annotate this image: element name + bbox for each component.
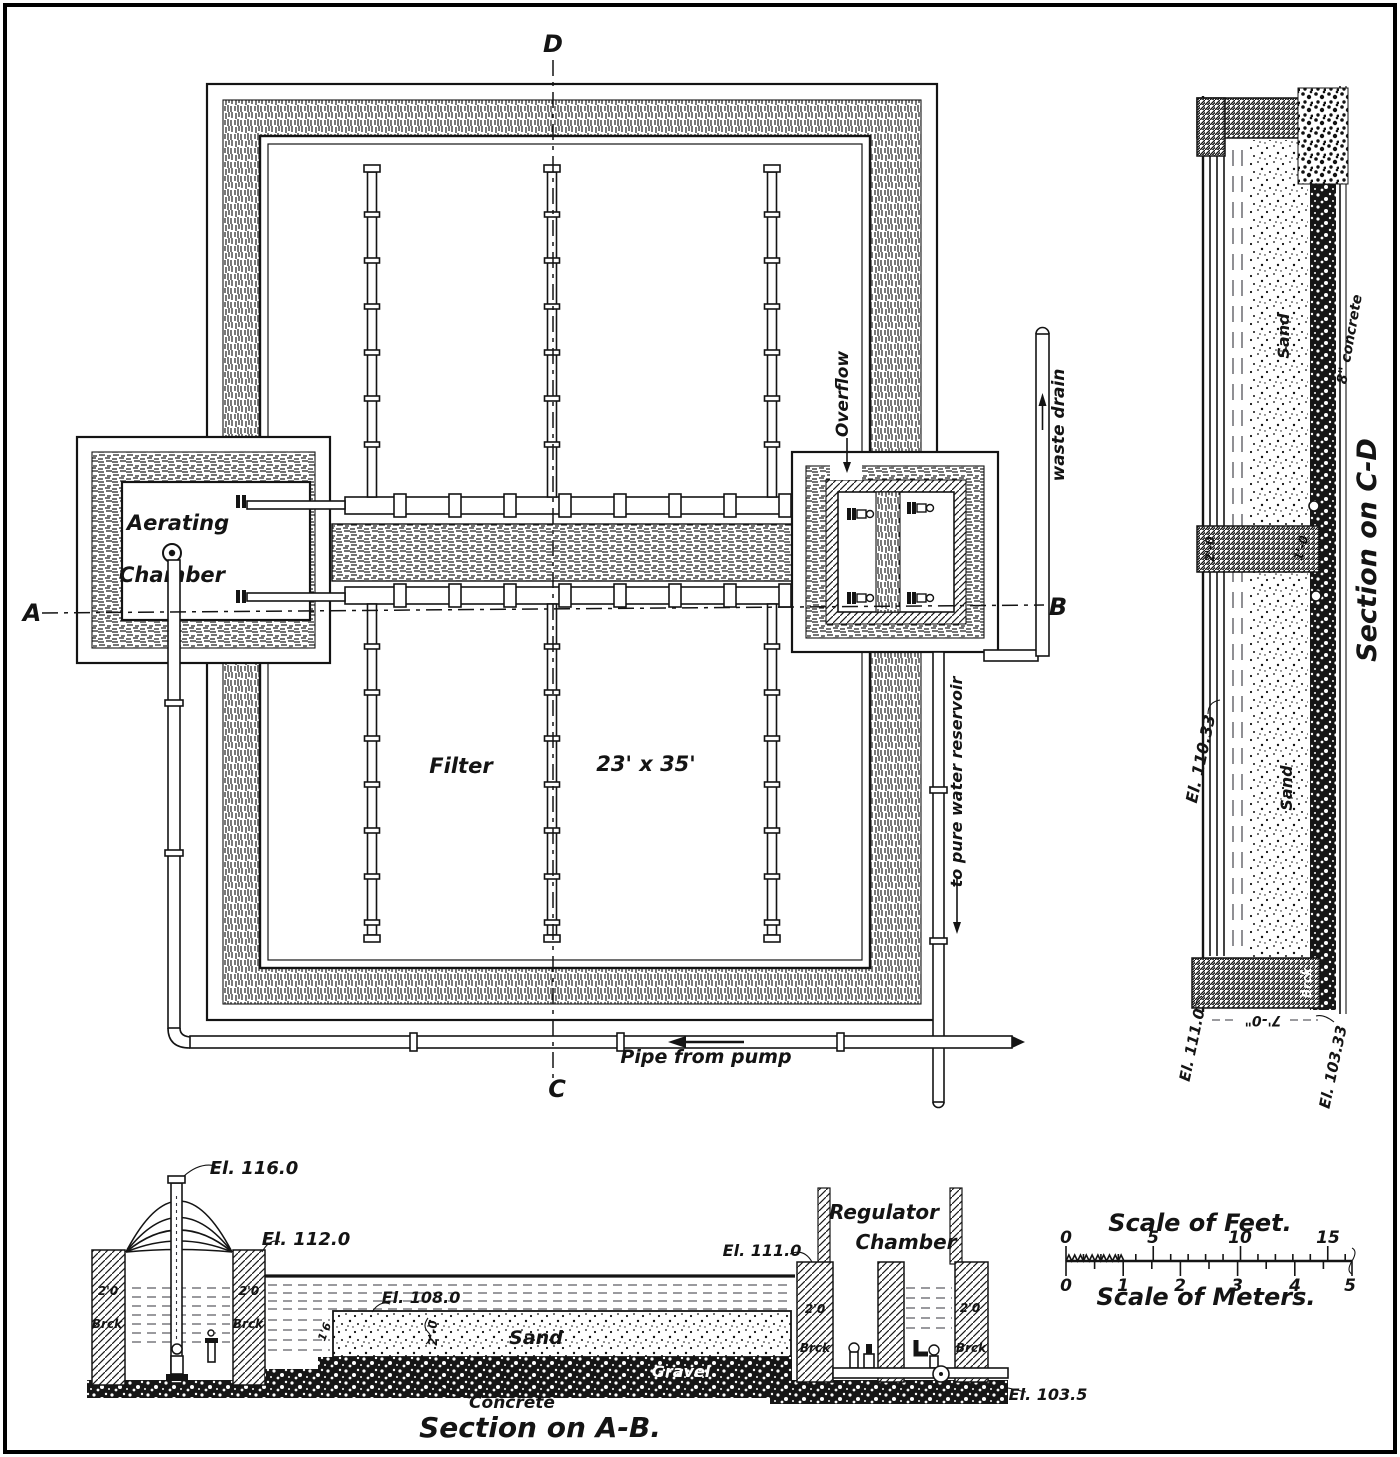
ab-gravel-bed <box>318 1357 792 1382</box>
ab-el-outlet: El. 103.5 <box>1009 1385 1088 1404</box>
cd-el-top-wall: El. 110.33 <box>1182 713 1219 805</box>
marker-a: A <box>21 599 42 627</box>
meter-tick-5: 5 <box>1344 1276 1356 1296</box>
ab-el-wall-top: El. 112.0 <box>262 1229 351 1250</box>
ab-el-regulator: El. 111.0 <box>723 1241 802 1260</box>
feet-tick-5: 5 <box>1147 1228 1159 1248</box>
ab-brick-3: Brck <box>800 1341 831 1355</box>
cd-sand-lower-label: Sand <box>1277 765 1296 811</box>
cd-sand-upper-label: Sand <box>1274 313 1293 359</box>
section-cd-title: Section on C-D <box>1352 438 1383 662</box>
cd-top-rubble <box>1298 88 1348 184</box>
meter-tick-3: 3 <box>1231 1276 1243 1296</box>
ab-el-water: El. 108.0 <box>382 1288 461 1307</box>
pure-water-label: to pure water reservoir <box>947 676 966 888</box>
aerating-chamber-plan: Aerating Chamber <box>77 437 345 663</box>
ab-brick-1: Brck <box>92 1317 123 1331</box>
ab-gravel-label: Gravel <box>652 1362 711 1381</box>
cd-el-floor: El. 111.0 <box>1176 1007 1209 1083</box>
ab-wall-dim-4: 2'0 <box>960 1301 980 1315</box>
pipe-end-tip <box>1012 1036 1025 1048</box>
cd-dim-wall-left: 2'-0 <box>1203 536 1217 561</box>
ab-outlet-pipe <box>833 1368 1008 1378</box>
ruler-ticks <box>1066 1246 1355 1276</box>
cd-dim-width: 7'-0" <box>1245 1012 1282 1028</box>
filter-dimensions: 23' x 35' <box>596 752 695 776</box>
meter-tick-4: 4 <box>1288 1276 1301 1296</box>
feet-tick-10: 10 <box>1228 1228 1252 1248</box>
pure-water-arrowhead <box>953 922 961 934</box>
ab-reg-wall-mid <box>878 1262 904 1382</box>
drawing-sheet: Aerating Chamber Overflow <box>0 0 1400 1457</box>
cd-brick-label: Brck <box>1300 967 1314 998</box>
overflow-label: Overflow <box>833 351 853 438</box>
ab-gravel-depth-dim: 1'6 <box>315 1320 334 1342</box>
scale-feet-title: Scale of Feet. <box>1108 1209 1292 1237</box>
section-ab: El. 116.0 El. 112.0 El. 108.0 Sand Grave… <box>87 1158 1087 1444</box>
ab-aerating-chamber <box>92 1165 280 1385</box>
meter-tick-0: 0 <box>1060 1276 1072 1296</box>
upper-header-pipe <box>345 497 807 514</box>
section-ab-title: Section on A-B. <box>419 1411 661 1444</box>
scale-bars: Scale of Feet. Scale of Meters. 0 5 10 1… <box>1060 1209 1356 1311</box>
waste-drain-label: waste drain <box>1049 369 1069 482</box>
pipe-from-pump-label: Pipe from pump <box>620 1046 791 1068</box>
ab-concrete-label: Concrete <box>469 1393 555 1413</box>
central-channel-wall <box>332 524 810 581</box>
inlet-stub-lower <box>247 593 345 601</box>
regulator-chamber-plan <box>792 452 998 652</box>
feet-tick-0: 0 <box>1060 1228 1072 1248</box>
lower-header-pipe <box>345 587 807 604</box>
regulator-divider-wall <box>876 492 900 612</box>
cd-el-bottom: El. 103.33 <box>1316 1024 1351 1110</box>
ab-brick-4: Brck <box>956 1341 987 1355</box>
ab-regulator-label-2: Chamber <box>856 1230 958 1254</box>
cd-concrete-note: 8" concrete <box>1334 293 1366 385</box>
ab-el-vent-top: El. 116.0 <box>210 1158 299 1179</box>
marker-c: C <box>548 1075 566 1103</box>
ab-regulator-label-1: Regulator <box>829 1200 940 1224</box>
ab-wall-dim-2: 2'0 <box>239 1284 259 1298</box>
feet-tick-15: 15 <box>1316 1228 1340 1248</box>
filter-plant-drawing: Aerating Chamber Overflow <box>0 0 1400 1457</box>
section-cd: Sand 8" concrete Sand El. 110.33 Section… <box>1176 86 1383 1110</box>
marker-b: B <box>1049 593 1067 621</box>
marker-d: D <box>543 30 563 58</box>
ab-brick-2: Brck <box>233 1317 264 1331</box>
meter-tick-2: 2 <box>1174 1276 1186 1296</box>
plan-view: Aerating Chamber Overflow <box>21 30 1069 1108</box>
ab-reg-wall-right <box>955 1262 988 1382</box>
ab-wall-dim-1: 2'0 <box>98 1284 118 1298</box>
ab-regulator-water <box>906 1288 952 1328</box>
scale-meters-title: Scale of Meters. <box>1097 1283 1316 1311</box>
meter-tick-1: 1 <box>1117 1276 1129 1296</box>
ab-reg-wall-left <box>797 1262 833 1382</box>
ab-sand-label: Sand <box>509 1327 563 1349</box>
filter-label: Filter <box>429 754 494 778</box>
inlet-stub-upper <box>247 501 345 509</box>
aerating-chamber-label-1: Aerating <box>125 511 229 535</box>
ab-wall-dim-3: 2'0 <box>805 1302 825 1316</box>
ab-filter-water <box>268 1285 792 1309</box>
ab-sand-depth-dim: 2'-0 <box>426 1320 440 1345</box>
